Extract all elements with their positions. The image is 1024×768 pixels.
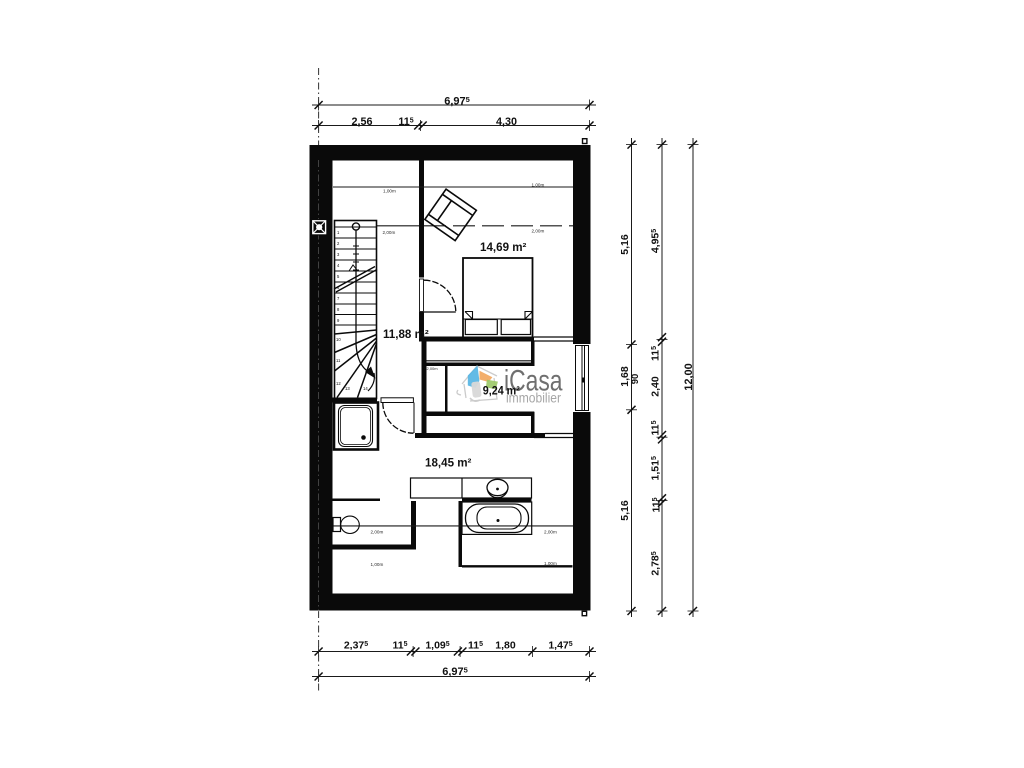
- svg-text:4,955: 4,955: [650, 229, 662, 253]
- svg-text:1,00m: 1,00m: [371, 562, 384, 567]
- svg-text:2,375: 2,375: [344, 639, 368, 651]
- svg-text:2,00m: 2,00m: [427, 366, 439, 371]
- svg-text:12: 12: [336, 381, 341, 386]
- svg-text:2: 2: [337, 241, 340, 246]
- svg-text:4: 4: [337, 263, 340, 268]
- svg-text:7: 7: [337, 296, 340, 301]
- svg-text:9,24 m²: 9,24 m²: [483, 384, 520, 398]
- svg-text:4,30: 4,30: [496, 116, 517, 128]
- svg-text:12,00: 12,00: [683, 363, 695, 391]
- svg-text:1,00m: 1,00m: [532, 182, 545, 187]
- svg-text:115: 115: [650, 420, 662, 435]
- svg-text:18,45 m²: 18,45 m²: [425, 457, 472, 470]
- svg-text:115: 115: [468, 639, 483, 651]
- svg-text:14: 14: [363, 386, 368, 391]
- svg-text:1,00m: 1,00m: [383, 188, 396, 193]
- svg-text:5,16: 5,16: [619, 234, 631, 255]
- svg-text:1,515: 1,515: [650, 456, 662, 480]
- svg-text:1,80: 1,80: [495, 639, 516, 651]
- svg-text:90: 90: [630, 374, 641, 385]
- svg-text:2,56: 2,56: [351, 116, 372, 128]
- svg-text:115: 115: [392, 639, 407, 651]
- svg-text:2,00m: 2,00m: [371, 529, 384, 534]
- svg-text:1,095: 1,095: [425, 639, 449, 651]
- svg-text:10: 10: [336, 337, 341, 342]
- svg-text:14,69 m²: 14,69 m²: [480, 241, 527, 254]
- svg-text:11: 11: [336, 358, 341, 363]
- svg-text:5: 5: [337, 274, 340, 279]
- svg-text:2,00m: 2,00m: [544, 529, 557, 534]
- svg-text:2,785: 2,785: [650, 551, 662, 575]
- svg-text:1: 1: [337, 230, 340, 235]
- svg-text:115: 115: [398, 116, 413, 128]
- svg-text:9: 9: [337, 318, 340, 323]
- svg-text:2,40: 2,40: [650, 376, 662, 397]
- svg-text:1,00m: 1,00m: [544, 561, 557, 566]
- svg-text:8: 8: [337, 307, 340, 312]
- svg-text:2,00m: 2,00m: [532, 228, 545, 233]
- svg-text:2,00m: 2,00m: [383, 230, 396, 235]
- svg-text:13: 13: [345, 386, 350, 391]
- svg-text:11,88 m²: 11,88 m²: [383, 328, 429, 341]
- svg-text:1,475: 1,475: [548, 639, 572, 651]
- svg-text:5,16: 5,16: [619, 500, 631, 521]
- svg-text:115: 115: [650, 346, 662, 361]
- svg-text:3: 3: [337, 252, 340, 257]
